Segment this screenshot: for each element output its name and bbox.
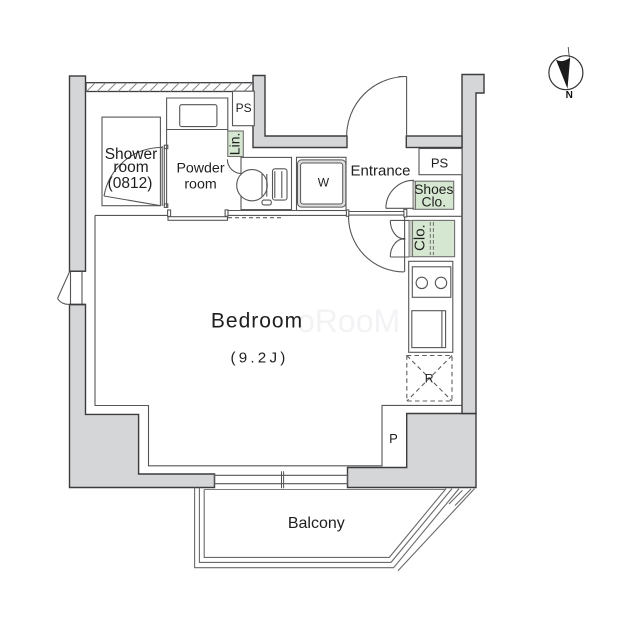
svg-text:Balcony: Balcony — [288, 515, 345, 532]
svg-text:Clo.: Clo. — [412, 224, 429, 251]
svg-text:PS: PS — [236, 101, 252, 115]
svg-text:PS: PS — [431, 155, 449, 170]
svg-text:room: room — [184, 176, 216, 192]
svg-text:Bedroom: Bedroom — [211, 309, 303, 332]
svg-text:W: W — [318, 175, 330, 189]
svg-text:(0812): (0812) — [108, 175, 153, 192]
svg-text:Lin.: Lin. — [227, 133, 243, 156]
svg-text:Entrance: Entrance — [350, 163, 410, 180]
svg-text:N: N — [566, 90, 573, 101]
svg-text:Powder: Powder — [176, 160, 224, 176]
svg-text:(9.2J): (9.2J) — [230, 350, 288, 367]
svg-text:Clo.: Clo. — [422, 195, 447, 210]
svg-text:R: R — [425, 372, 434, 386]
svg-text:P: P — [389, 431, 398, 446]
svg-text:room: room — [113, 159, 148, 176]
svg-text:oRooM: oRooM — [297, 303, 400, 339]
